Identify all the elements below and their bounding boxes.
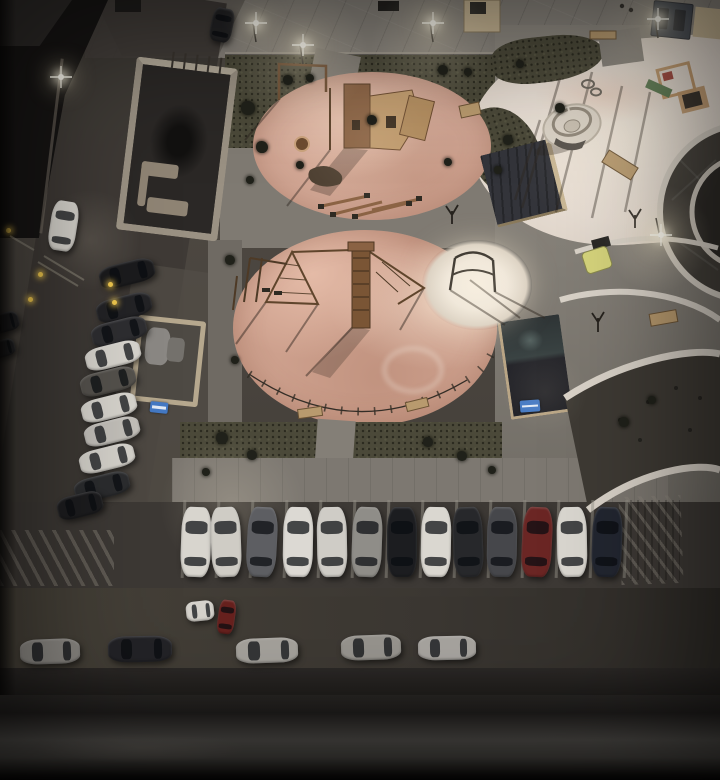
car-glass [185,521,208,534]
street-lamp-flare [430,20,436,26]
vent-slat [673,9,686,30]
car [387,507,417,577]
car-glass [88,493,98,511]
car-glass [65,498,77,517]
bollard-light [108,282,113,287]
street-lamp-flare [58,74,64,80]
car-glass [205,603,210,618]
bush [283,75,293,85]
car-glass [525,557,548,567]
car-glass [50,235,71,245]
car-glass [425,521,447,534]
bush [516,60,524,68]
bush [246,176,254,184]
bush [488,466,496,474]
car-glass [94,424,108,443]
street-curb [0,668,720,696]
bush [296,161,304,169]
car-glass [456,521,479,534]
utility-equipment [166,337,186,363]
bollard-light [112,300,117,305]
car-glass [391,521,413,534]
bush [202,468,210,476]
street-lamp-flare [300,42,306,48]
car-glass [63,641,71,660]
car-glass [154,639,163,658]
car [420,507,451,578]
bush [555,103,565,113]
car-glass [123,342,134,360]
walled-courtyard-with-trees [116,56,238,241]
car-glass [101,324,115,343]
bush [247,450,257,460]
car-glass [596,521,619,534]
car-glass [457,557,479,567]
car-glass [321,557,343,566]
car [418,635,476,660]
car-glass [90,374,104,393]
plaza-entry-path [598,27,644,67]
bush [231,356,239,364]
car-glass [212,31,229,39]
blue-sign [520,399,541,412]
bush [464,68,472,76]
car-glass [218,624,231,630]
car-glass [137,260,148,278]
car-glass [121,640,133,659]
car [236,636,299,663]
car-glass [287,521,309,534]
car-glass [526,520,549,534]
car-glass [251,520,274,534]
blue-sign [149,401,168,414]
car-glass [286,557,308,566]
striped-pavement-zone [0,530,114,586]
car-glass [429,639,440,657]
sill-light-smear [0,728,280,768]
car-glass [119,394,130,412]
bush [225,255,235,265]
bush [438,65,448,75]
car-glass [129,318,140,336]
car-glass [321,521,343,534]
car [282,507,313,578]
bush [423,437,433,447]
car-glass [248,641,260,660]
car-glass [191,604,198,619]
car [452,506,484,577]
car-glass [95,348,109,367]
bush [241,101,255,115]
street-lamp-flare [655,16,661,22]
car [486,507,517,578]
car [210,506,242,577]
car-glass [561,521,583,534]
car [180,506,212,577]
car-glass [561,557,583,566]
car-glass [54,210,75,222]
glass-reflection [512,324,548,357]
street-lamp-flare [658,232,664,238]
playground-circle-upper [253,72,491,220]
car-glass [353,638,364,657]
car-glass [250,557,273,567]
bush [494,166,502,174]
car [245,506,279,577]
car-glass [391,557,413,566]
car-glass [112,473,123,491]
car-glass [117,445,128,463]
car-glass [184,557,206,567]
car [556,507,587,578]
car-glass [424,557,446,566]
window-frame-left [0,0,16,780]
courtyard-bench [146,197,188,216]
lens-flare-ring [382,346,444,394]
car-glass [215,557,237,567]
bush [256,141,268,153]
bush [503,135,513,145]
car-glass [214,521,237,534]
car-glass [89,451,103,470]
bush [457,451,467,461]
car-glass [460,639,468,657]
car-glass [356,521,379,534]
car-glass [280,640,289,659]
car [108,635,172,662]
bush [367,115,377,125]
bush [216,432,228,444]
car-glass [134,294,145,312]
car [185,600,215,623]
car-glass [491,521,513,534]
car-glass [220,606,233,614]
car-glass [215,13,232,22]
bush [619,417,629,427]
car [316,507,347,578]
car-glass [355,557,377,567]
bush [648,396,656,404]
car [591,506,623,577]
car [351,506,383,577]
bollard-light [38,272,43,277]
car [20,637,81,664]
car [341,633,402,660]
bollard-light [28,297,33,302]
car-glass [490,557,512,566]
street-lamp-flare [253,20,259,26]
drainage-grate [630,500,680,580]
car-glass [595,557,617,567]
car-glass [32,642,43,661]
beige-wall-corner [693,7,720,40]
bush [444,158,452,166]
bush [306,74,314,82]
car-glass [384,637,392,656]
car-glass [118,368,129,386]
car-glass [91,400,105,419]
lit-play-pad [422,240,532,330]
car [520,506,554,577]
sidewalk-above-parking [172,458,668,504]
night-courtyard-scene [0,0,720,780]
car-glass [122,418,133,436]
